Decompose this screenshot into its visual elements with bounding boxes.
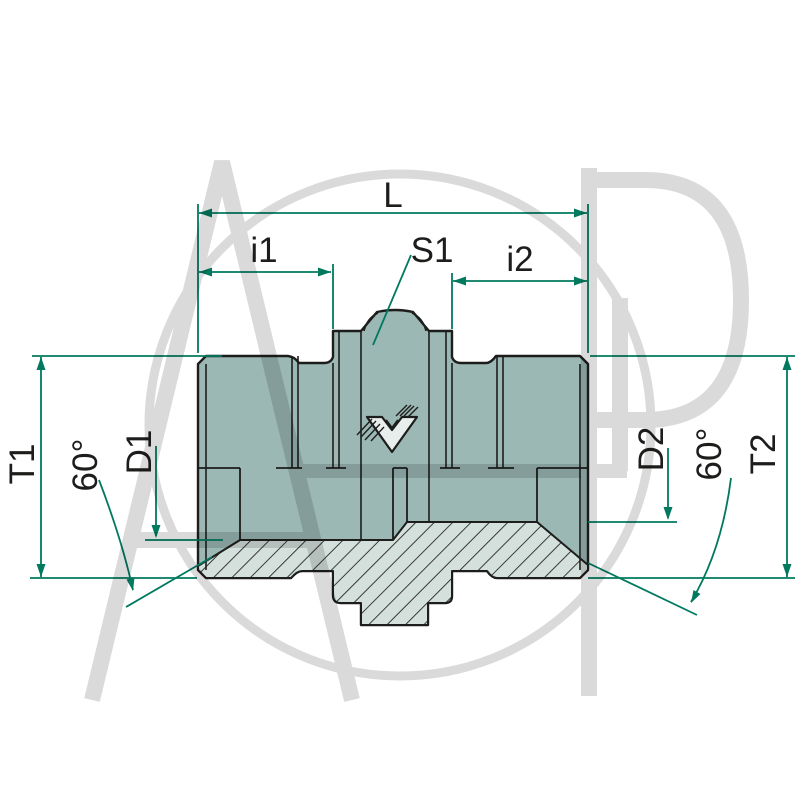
label-thread-right: T2 xyxy=(744,434,783,475)
label-thread-left: T1 xyxy=(3,444,42,485)
label-thread-length-right: i2 xyxy=(506,240,533,279)
label-angle-left: 60° xyxy=(66,439,105,492)
label-angle-right: 60° xyxy=(690,428,729,481)
label-overall-length: L xyxy=(383,176,402,215)
fitting-technical-drawing: L i1 S1 i2 T1 60° D1 D2 60° T2 AGP xyxy=(0,0,800,800)
label-hex-size: S1 xyxy=(411,231,454,270)
technical-drawing-page: L i1 S1 i2 T1 60° D1 D2 60° T2 AGP xyxy=(0,0,800,800)
